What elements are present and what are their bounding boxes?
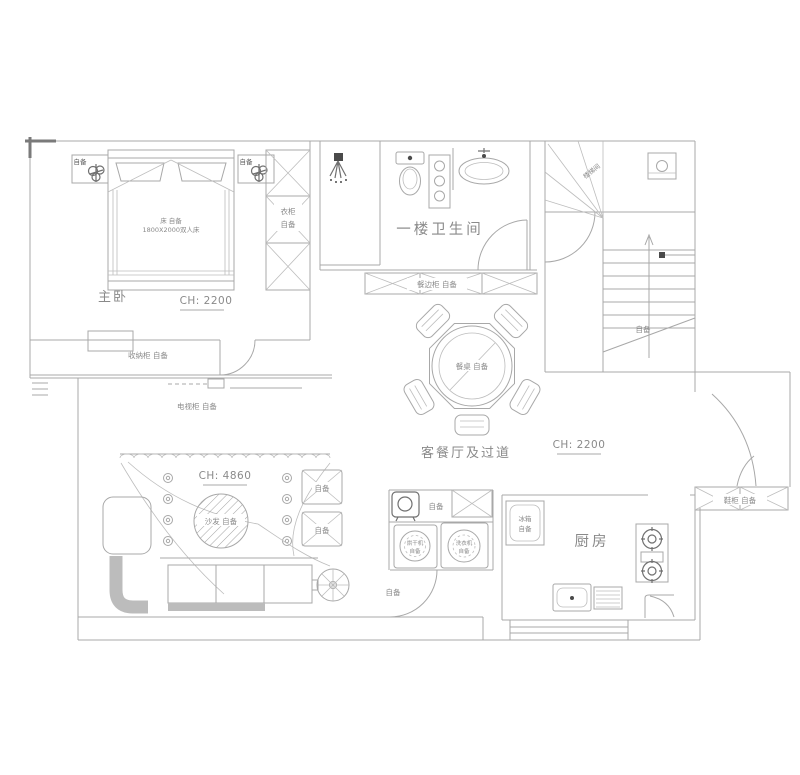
washbasin [453,148,509,190]
living-room: CH: 4860 沙发 自备 自备 自备 [103,454,401,611]
kitchen-label: 厨房 [575,533,610,550]
stool-bottom-label: 自备 [315,525,330,535]
rug: 沙发 自备 [194,494,248,548]
tv-wall: 电视柜 自备 [168,379,302,411]
washer-label-line1: 洗衣机 [456,539,473,547]
living-ceiling-height: CH: 4860 [199,470,252,482]
nightstand-plant-left: 自备 [72,155,108,183]
shoe-cabinet-label: 鞋柜 自备 [724,495,757,505]
bed-note-line2: 1800X2000双人床 [142,225,200,234]
sideboard-label: 餐边柜 自备 [417,279,457,289]
plant-left-label: 自备 [74,157,88,166]
washer-label-line2: 自备 [458,547,470,555]
wardrobe-label-line1: 衣柜 [281,206,296,216]
living-dining-ceiling-height: CH: 2200 [553,439,606,451]
bathroom-label: 一楼卫生间 [396,221,484,238]
dining-table: 餐桌 自备 [402,302,542,435]
stool-top: 自备 [302,470,342,504]
stair-note: 自备 [636,324,651,334]
dining-table-label: 餐桌 自备 [456,361,489,371]
master-bedroom-ceiling-height: CH: 2200 [180,295,233,307]
water-heater-label: 自备 [429,501,444,511]
shoe-cabinet: 鞋柜 自备 [695,487,788,510]
dryer: 烘干机 自备 [394,525,437,568]
fan-icon [312,569,349,601]
sofa-label: 沙发 自备 [205,516,238,526]
bath-cabinet [429,155,450,208]
water-heater-icon: 自备 [392,492,444,521]
storage-cabinet-label: 收纳柜 自备 [128,350,168,360]
wardrobe: 衣柜 自备 [266,150,310,290]
kitchen-sink [553,584,622,611]
stairwell-label: 楼梯间 [581,161,602,180]
stove [636,524,668,583]
dryer-label-line2: 自备 [409,547,421,555]
bathroom: 一楼卫生间 [330,148,509,238]
tv-cabinet-label: 电视柜 自备 [177,401,217,411]
nightstand-plant-right: 自备 [238,155,274,183]
fridge-label-line1: 冰箱 [519,514,533,523]
wardrobe-label-line2: 自备 [281,219,296,229]
master-bedroom: 床 自备 1800X2000双人床 自备 自备 衣柜 自备 主卧 CH: 220… [72,150,310,360]
nook-cabinet [452,490,492,517]
floor-plan: 床 自备 1800X2000双人床 自备 自备 衣柜 自备 主卧 CH: 220… [0,0,800,775]
master-bedroom-label: 主卧 [98,290,128,305]
stool-bottom: 自备 [302,512,342,546]
dryer-label-line1: 烘干机 [407,539,424,547]
laundry-nook: 自备 烘干机 自备 洗衣机 自备 [389,490,493,568]
fridge-label-line2: 自备 [519,524,533,533]
washer: 洗衣机 自备 [441,523,488,568]
storage-cabinet: 收纳柜 自备 [88,331,168,360]
toilet [396,152,424,195]
stool-top-label: 自备 [315,483,330,493]
stair-window [648,153,676,179]
shower-head-icon [330,153,347,183]
sideboard: 餐边柜 自备 [365,270,537,294]
fridge: 冰箱 自备 [506,501,544,545]
kitchen: 冰箱 自备 厨房 [506,501,674,618]
living-dining-label: 客餐厅及过道 [421,445,511,461]
bed: 床 自备 1800X2000双人床 [108,150,234,290]
passage-note: 自备 [386,587,401,597]
plant-right-label: 自备 [240,157,254,166]
bed-note-line1: 床 自备 [160,216,182,225]
